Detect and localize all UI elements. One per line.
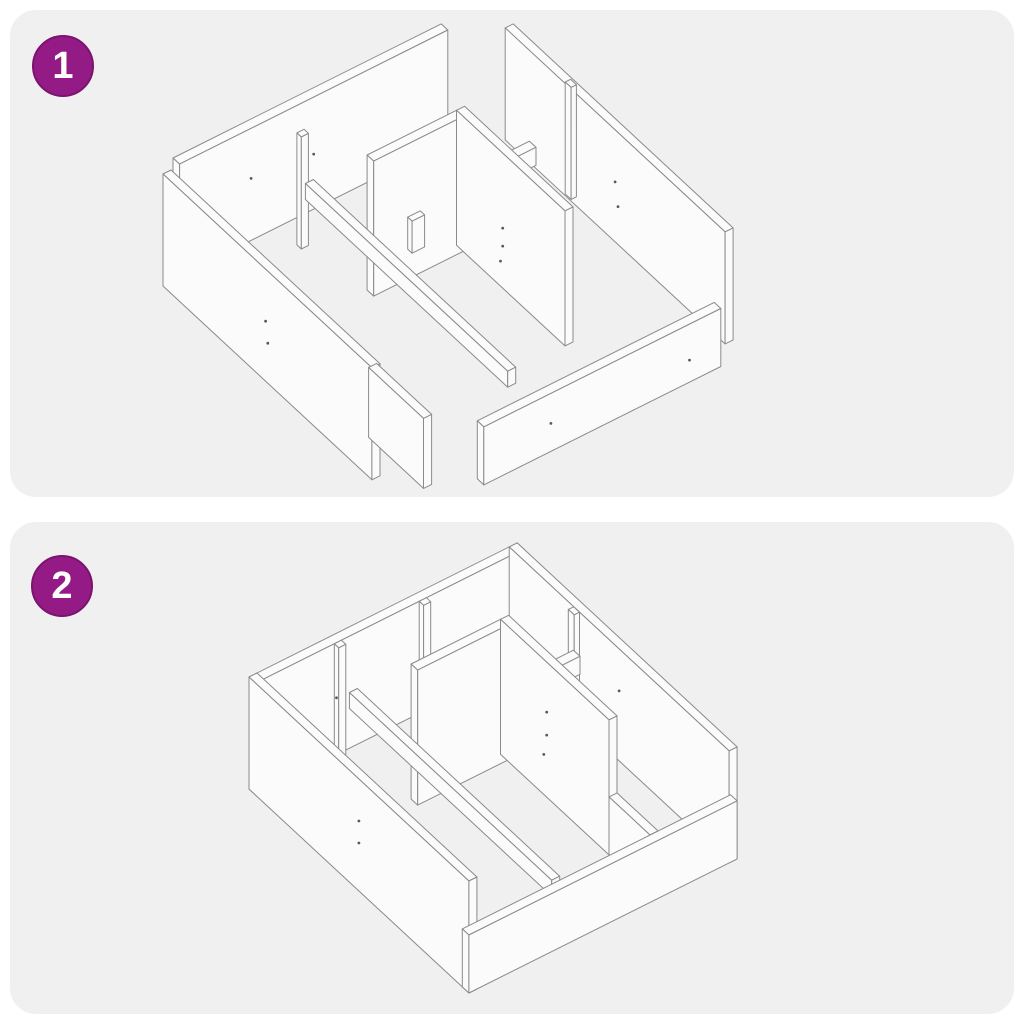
step-2-panel: 2 bbox=[10, 522, 1014, 1014]
step-1-panel: 1 bbox=[10, 10, 1014, 497]
step-2-number: 2 bbox=[51, 565, 72, 608]
step-2-badge: 2 bbox=[31, 555, 93, 617]
step-1-number: 1 bbox=[52, 45, 73, 88]
step-1-exploded-illustration bbox=[10, 10, 1014, 497]
step-1-badge: 1 bbox=[32, 35, 94, 97]
step-2-assembled-illustration bbox=[10, 522, 1014, 1014]
